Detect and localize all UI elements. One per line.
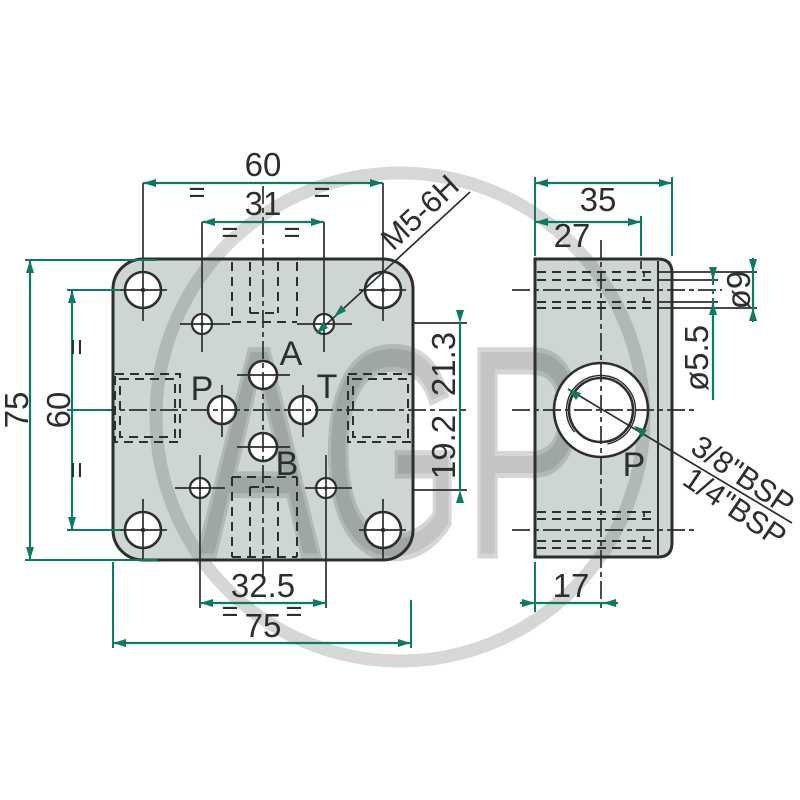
equal-mark: = xyxy=(286,596,303,628)
side-port-p-label: P xyxy=(623,446,646,484)
thread-callout-label: M5-6H xyxy=(374,168,466,257)
dim-bottom-width: 75 xyxy=(245,607,282,644)
port-b-label: B xyxy=(276,445,299,483)
equal-mark: = xyxy=(61,462,93,479)
port-a-label: A xyxy=(280,335,303,373)
dim-step: 27 xyxy=(554,217,591,254)
dim-counterbore: ø9 xyxy=(720,271,757,310)
dim-right-lower: 19.2 xyxy=(425,415,462,479)
equal-mark: = xyxy=(314,177,331,209)
dim-port-offset: 17 xyxy=(553,567,590,604)
dim-left-height: 75 xyxy=(0,392,35,429)
dim-through-hole: ø5.5 xyxy=(678,325,715,391)
dim-top-inner-width: 31 xyxy=(245,185,282,222)
equal-mark: = xyxy=(61,339,93,356)
dim-right-upper: 21.3 xyxy=(425,332,462,396)
port-p-label: P xyxy=(191,370,214,408)
port-t-label: T xyxy=(317,368,338,406)
equal-mark: = xyxy=(189,177,206,209)
equal-mark: = xyxy=(222,596,239,628)
equal-mark: = xyxy=(222,217,239,249)
drawing-canvas: AGP xyxy=(0,0,800,800)
dim-top-width: 60 xyxy=(245,146,282,183)
technical-drawing: AGP xyxy=(0,0,800,800)
dim-left-inner-height: 60 xyxy=(40,392,77,429)
dim-depth: 35 xyxy=(580,181,617,218)
equal-mark: = xyxy=(284,217,301,249)
